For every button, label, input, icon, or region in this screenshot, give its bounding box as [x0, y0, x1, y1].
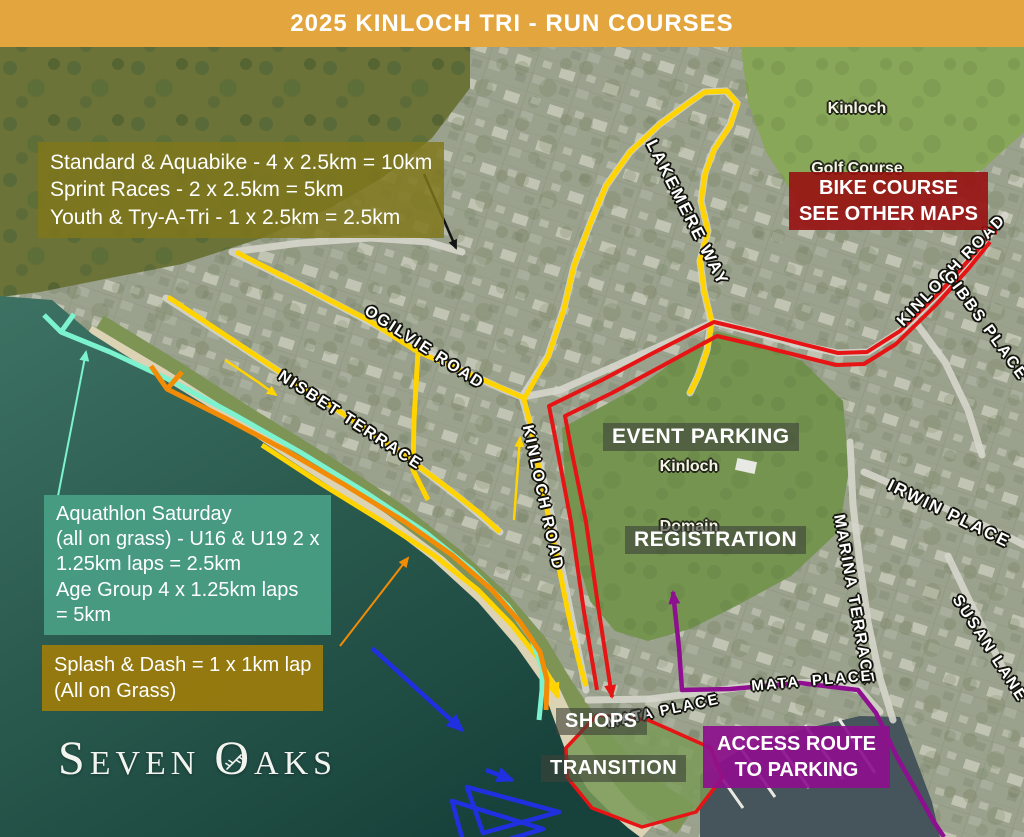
- info-line: Age Group 4 x 1.25km laps: [56, 578, 319, 603]
- logo-letter-o: O: [214, 732, 254, 785]
- page-title: 2025 KINLOCH TRI - RUN COURSES: [290, 10, 733, 38]
- info-line: Aquathlon Saturday: [56, 502, 319, 527]
- info-line: (all on grass) - U16 & U19 2 x: [56, 527, 319, 552]
- splash-dash-info-box: Splash & Dash = 1 x 1km lap (All on Gras…: [42, 645, 323, 711]
- info-line: Standard & Aquabike - 4 x 2.5km = 10km: [50, 149, 432, 176]
- info-line: Splash & Dash = 1 x 1km lap: [54, 652, 311, 678]
- info-line: TO PARKING: [717, 757, 876, 783]
- info-line: SEE OTHER MAPS: [799, 201, 978, 227]
- info-line: Youth & Try-A-Tri - 1 x 2.5km = 2.5km: [50, 204, 432, 231]
- title-banner: 2025 KINLOCH TRI - RUN COURSES: [0, 0, 1024, 47]
- event-parking-tag: EVENT PARKING: [603, 423, 799, 451]
- seven-oaks-logo: SEVENO AKS: [58, 735, 337, 783]
- info-line: (All on Grass): [54, 678, 311, 704]
- info-line: BIKE COURSE: [799, 175, 978, 201]
- access-route-info-box: ACCESS ROUTE TO PARKING: [703, 726, 890, 788]
- logo-letters: AKS: [254, 747, 337, 781]
- info-line: 1.25km laps = 2.5km: [56, 552, 319, 577]
- info-line: ACCESS ROUTE: [717, 731, 876, 757]
- run-distances-info-box: Standard & Aquabike - 4 x 2.5km = 10km S…: [38, 142, 444, 238]
- shops-tag: SHOPS: [556, 708, 647, 735]
- area-line: Kinloch: [811, 99, 903, 119]
- transition-tag: TRANSITION: [541, 755, 686, 782]
- kinloch-tri-run-course-map: 2025 KINLOCH TRI - RUN COURSES Standard …: [0, 0, 1024, 837]
- logo-letters: EVEN: [90, 747, 201, 781]
- logo-letter: S: [58, 735, 90, 783]
- registration-tag: REGISTRATION: [625, 526, 806, 554]
- info-line: Sprint Races - 2 x 2.5km = 5km: [50, 176, 432, 203]
- area-line: Kinloch: [660, 457, 719, 477]
- bike-course-info-box: BIKE COURSE SEE OTHER MAPS: [789, 172, 988, 230]
- info-line: = 5km: [56, 603, 319, 628]
- aquathlon-info-box: Aquathlon Saturday (all on grass) - U16 …: [44, 495, 331, 635]
